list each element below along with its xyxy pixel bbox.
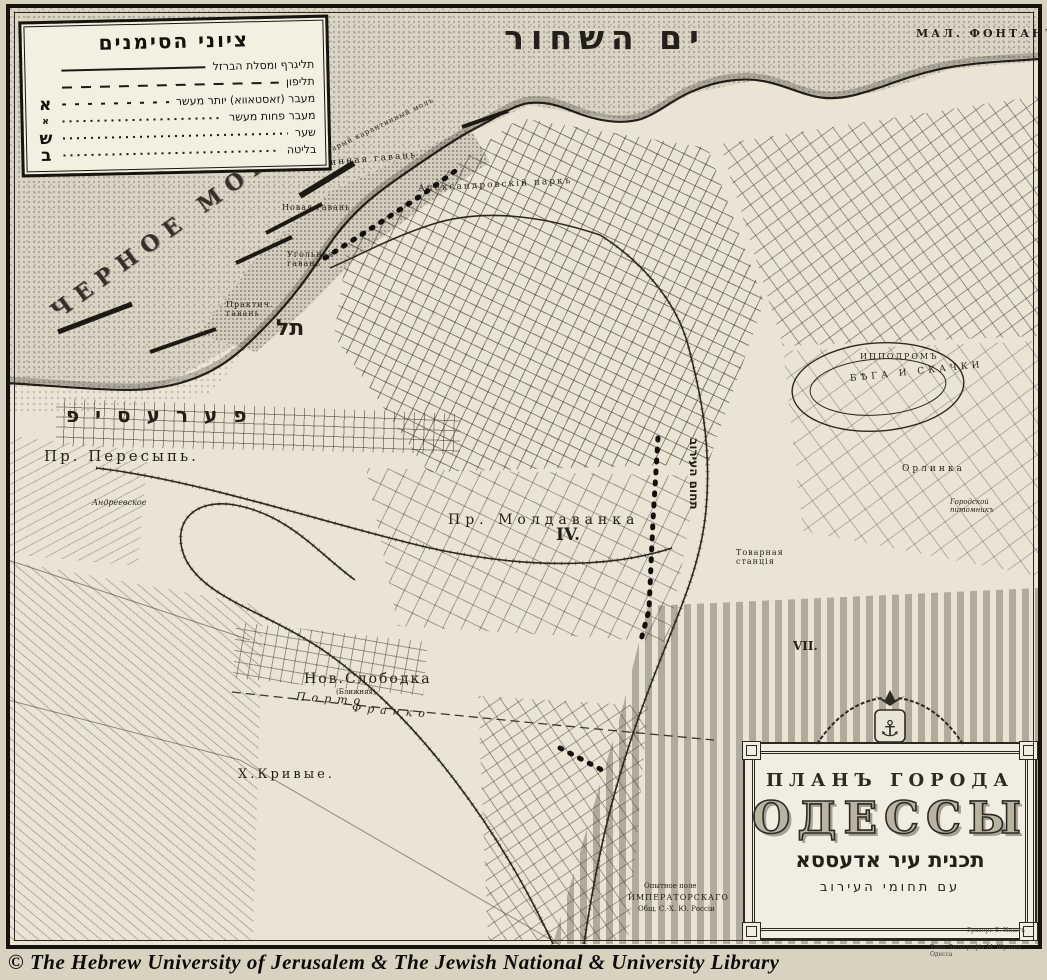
legend-symbol: ב [36, 145, 56, 165]
legend-line-sample [63, 132, 288, 139]
label-prakticheskaya-gavan: Практич. гавань [226, 300, 273, 318]
legend-item-label: תליפון [286, 75, 315, 89]
title-cartouche: ⚓ ПЛАНЪ ГОРОДА ОДЕССЫ תכנית עיר אדעססא ע… [743, 742, 1037, 940]
cartouche-corner-ornament [742, 922, 761, 941]
label-nov-slobodka: Нов.Слободка [304, 671, 432, 687]
legend-symbol: א [35, 116, 55, 126]
label-kh-krivye: Х.Кривые. [238, 768, 335, 783]
label-bega-i-skachki: БѢГА И СКАЧКИ [849, 360, 984, 384]
legend-line-sample [62, 81, 279, 88]
legend-item-label: שער [295, 126, 316, 139]
label-novaya-gavan: Новая гавань [282, 203, 351, 212]
label-moldavanka: Пр. Молдаванка [448, 512, 639, 528]
label-opytnoe-pole: Опытное поле [644, 882, 697, 890]
legend-line-sample [62, 101, 169, 105]
label-obshchestvo: Общ. С.-Х. Ю. Россіи [638, 905, 715, 913]
label-eruv-boundary-vertical: תחום העירוב [686, 438, 700, 510]
legend-line-sample [63, 116, 222, 122]
legend-item-label: מעבר פחות מעשר [229, 109, 316, 124]
cartouche-corner-ornament [742, 741, 761, 760]
label-franko: Франко [351, 702, 431, 721]
label-orlinka: Орлинка [902, 464, 965, 474]
legend-items: תליגרף ומסלת הברזלתליפוןמעבר (זאסטאווא) … [34, 56, 316, 164]
legend-box: ציוני הסימנים תליגרף ומסלת הברזלתליפוןמע… [18, 15, 331, 178]
legend-line-sample [61, 66, 205, 71]
legend-item-label: בליטה [287, 143, 317, 157]
sea-title-hebrew: ים השחור [470, 18, 740, 57]
label-eruv-marker-tel: תל [276, 316, 304, 341]
legend-title: ציוני הסימנים [34, 26, 314, 56]
cartouche-inner-frame [752, 751, 1028, 931]
odessa-coat-of-arms-icon: ⚓ [805, 686, 975, 748]
legend-item-label: תליגרף ומסלת הברזל [213, 58, 315, 73]
legend-item-label: מעבר (זאסטאווא) יותר מעשר [176, 92, 316, 108]
label-peresyp-hebrew: פערעסיפ [66, 404, 262, 427]
label-ippodrom: ИППОДРОМЪ [860, 352, 938, 361]
label-karantinny-mol: Старый карантинный молъ [320, 96, 435, 158]
label-ugolnaya-gavan: Угольная гавань [287, 250, 334, 268]
label-peresyp-russian: Пр. Пересыпь. [44, 448, 199, 465]
legend-symbol: א [35, 94, 55, 114]
label-imperatorskago: ИМПЕРАТОРСКАГО [628, 893, 729, 902]
label-mal-fontan: МАЛ. ФОНТАНЪ [916, 28, 1047, 41]
anchor-icon: ⚓ [880, 717, 900, 742]
label-alexandrovsky-park: Александровскій паркъ [418, 176, 573, 194]
label-section-iv: IV. [556, 526, 580, 546]
label-gorodskoy-pitomnik: Городской питомникъ [950, 498, 994, 514]
legend-line-sample [63, 149, 280, 156]
label-section-vii: VII. [793, 640, 818, 654]
double-eagle-icon [875, 690, 905, 706]
cartouche-corner-ornament [1019, 741, 1038, 760]
odessa-map-scan: ЧЕРНОЕ МОРЕМАЛ. ФОНТАНЪСтарый карантинны… [0, 0, 1047, 980]
label-tovarnaya-stantsia: Товарная станція [736, 548, 784, 566]
label-andreevskoe: Андреевское [92, 498, 146, 507]
copyright-line: © The Hebrew University of Jerusalem & T… [8, 950, 1038, 975]
engraver-credit: Граверъ Е. Ништъ [967, 927, 1025, 934]
